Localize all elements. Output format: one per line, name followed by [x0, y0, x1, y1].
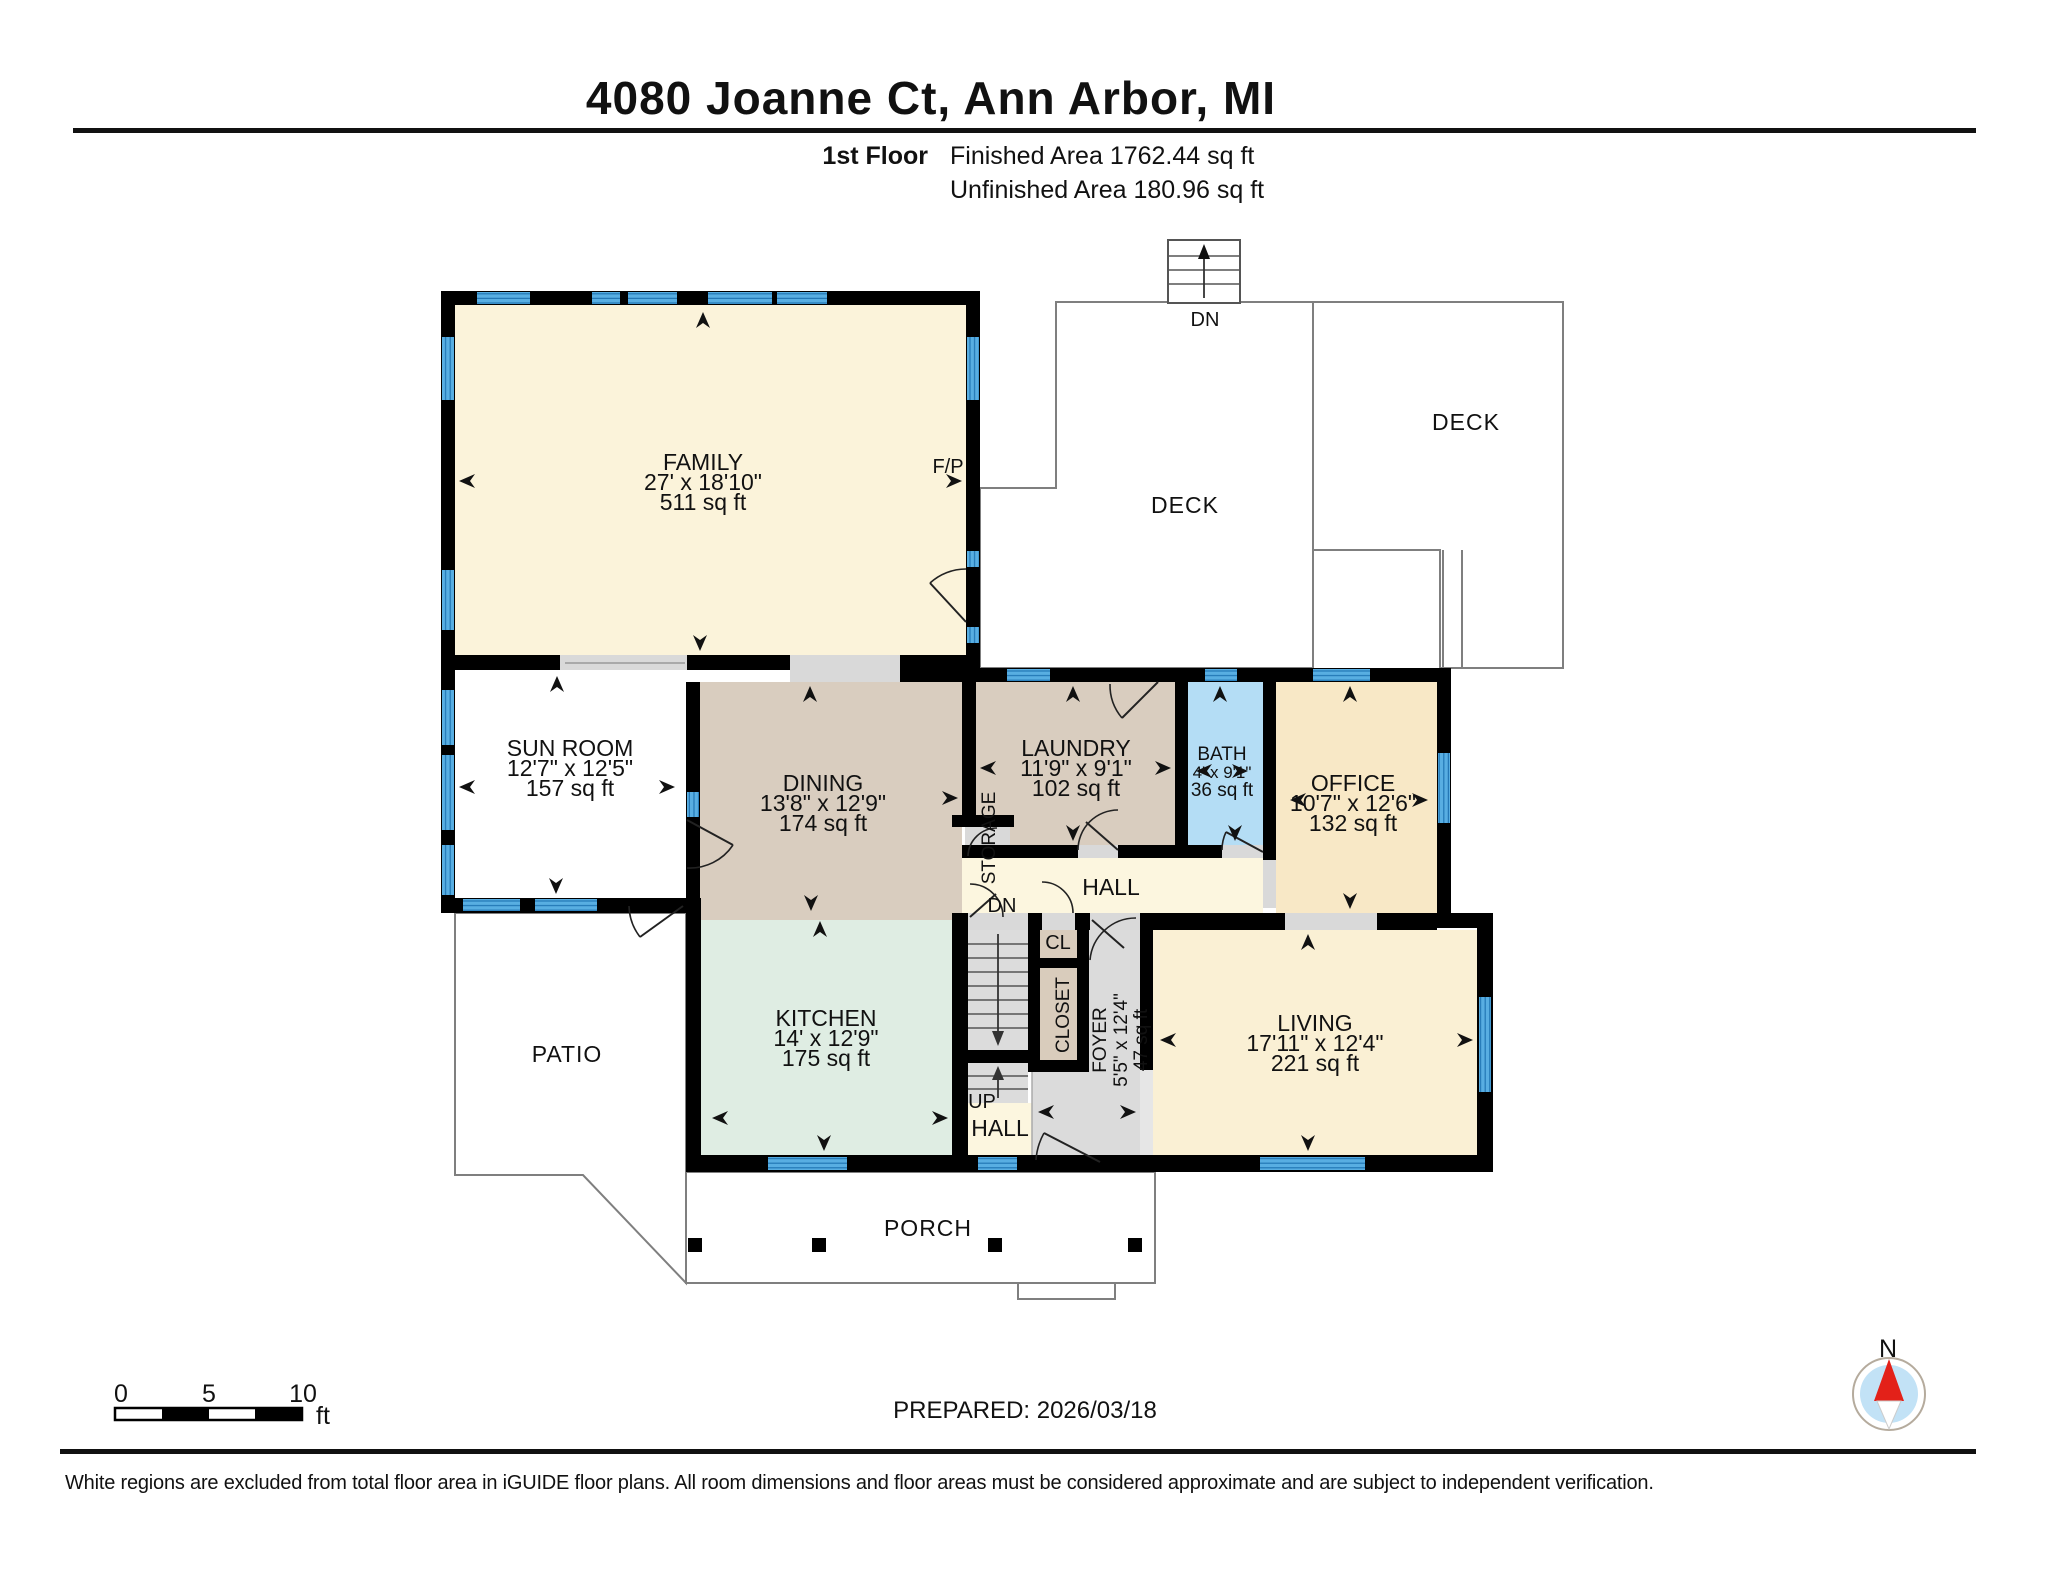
footer-divider — [60, 1449, 1976, 1454]
hall-lower-label: HALL — [971, 1115, 1029, 1141]
scale-0: 0 — [114, 1380, 128, 1408]
foyer-area: 47 sq ft — [1131, 1008, 1152, 1071]
kitchen-area: 175 sq ft — [782, 1045, 871, 1071]
dn-deck-label: DN — [1191, 309, 1220, 331]
scale-unit: ft — [316, 1402, 330, 1430]
foyer-label: FOYER — [1090, 1007, 1111, 1072]
hall-upper-label: HALL — [1082, 874, 1140, 900]
porch-step — [1018, 1283, 1115, 1299]
patio-label: PATIO — [532, 1041, 603, 1067]
footer-disclaimer: White regions are excluded from total fl… — [65, 1472, 1654, 1494]
deck-left-label: DECK — [1151, 492, 1219, 518]
deck-left-region — [980, 302, 1313, 668]
deck-right-label: DECK — [1432, 409, 1500, 435]
bath-area: 36 sq ft — [1191, 780, 1254, 801]
prepared-date: PREPARED: 2026/03/18 — [893, 1397, 1157, 1424]
unfinished-area: Unfinished Area 180.96 sq ft — [950, 176, 1264, 204]
storage-label: STORAGE — [979, 792, 1000, 885]
fireplace-label: F/P — [932, 456, 963, 478]
scale-bar: 0 5 10 ft — [114, 1380, 330, 1430]
closet-label: CLOSET — [1053, 977, 1074, 1053]
laundry-area: 102 sq ft — [1032, 775, 1121, 801]
deck-right-region — [1313, 302, 1563, 668]
deck-stairs — [1168, 240, 1240, 303]
porch-label: PORCH — [884, 1215, 972, 1241]
up-label: UP — [968, 1091, 996, 1113]
finished-area: Finished Area 1762.44 sq ft — [950, 142, 1254, 170]
dn-stair-label: DN — [988, 895, 1017, 917]
sunroom-area: 157 sq ft — [526, 775, 615, 801]
foyer-dims: 5'5" x 12'4" — [1111, 993, 1132, 1087]
family-area: 511 sq ft — [660, 489, 747, 515]
office-area: 132 sq ft — [1309, 810, 1398, 836]
floorplan-page: 4080 Joanne Ct, Ann Arbor, MI 1st Floor … — [0, 0, 2048, 1582]
dining-area: 174 sq ft — [779, 810, 868, 836]
patio-region — [455, 913, 686, 1283]
page-title: 4080 Joanne Ct, Ann Arbor, MI — [586, 72, 1276, 124]
bath-label: BATH — [1197, 744, 1246, 765]
compass-icon: N — [1853, 1335, 1925, 1430]
cl-label: CL — [1045, 932, 1071, 954]
floor-label: 1st Floor — [822, 142, 928, 170]
floorplan-canvas: 4080 Joanne Ct, Ann Arbor, MI 1st Floor … — [0, 0, 2048, 1582]
scale-10: 10 — [289, 1380, 317, 1408]
header-divider — [73, 128, 1976, 133]
interior-stairs-down — [968, 930, 1028, 1050]
living-area: 221 sq ft — [1271, 1050, 1360, 1076]
scale-5: 5 — [202, 1380, 216, 1408]
